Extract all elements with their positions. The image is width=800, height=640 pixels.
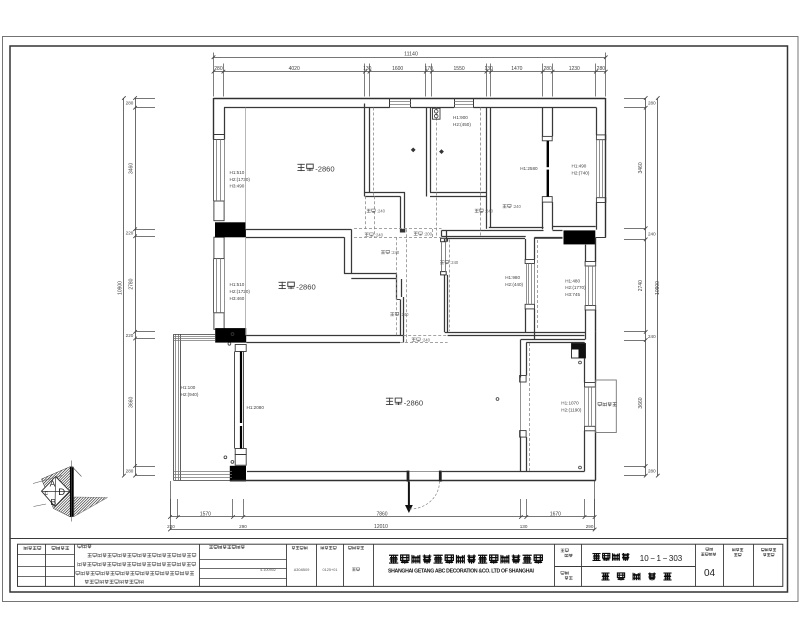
svg-text:H1:2580: H1:2580	[520, 166, 538, 171]
svg-text:H1:1070: H1:1070	[561, 401, 579, 406]
svg-text:H2:(1190): H2:(1190)	[561, 407, 582, 412]
svg-text:3460: 3460	[638, 162, 644, 173]
svg-text:220: 220	[126, 333, 134, 338]
svg-text:1570: 1570	[200, 512, 211, 518]
svg-text:170: 170	[425, 66, 434, 72]
svg-text:H2:(940): H2:(940)	[181, 392, 199, 397]
svg-text:H2:(1720): H2:(1720)	[230, 289, 251, 294]
svg-text:H1:900: H1:900	[453, 115, 468, 120]
svg-text:-2860: -2860	[296, 283, 315, 292]
svg-text:280: 280	[126, 469, 134, 474]
svg-text:04: 04	[704, 568, 716, 579]
svg-text:c: c	[44, 490, 48, 497]
svg-text::240: :240	[391, 250, 400, 255]
svg-text:280: 280	[597, 66, 606, 72]
svg-text:SHANGHAI GETANG ABC DECORATION: SHANGHAI GETANG ABC DECORATION &CO. LTD …	[388, 569, 535, 575]
svg-text:220: 220	[167, 524, 175, 529]
svg-text::240: :240	[400, 312, 409, 317]
svg-text:130: 130	[485, 66, 494, 72]
svg-text:H3:745: H3:745	[565, 292, 580, 297]
svg-text::240: :240	[513, 204, 522, 209]
svg-text:3660: 3660	[128, 396, 134, 407]
svg-text:0125+01: 0125+01	[323, 568, 338, 572]
svg-text::240: :240	[422, 337, 431, 342]
svg-text:H2:(440): H2:(440)	[505, 282, 523, 287]
svg-text:10900: 10900	[655, 281, 661, 295]
svg-text:H2:(740): H2:(740)	[572, 170, 590, 175]
svg-text:240: 240	[648, 334, 656, 339]
svg-text:H2:(1730): H2:(1730)	[230, 177, 251, 182]
svg-text:1230: 1230	[569, 66, 580, 72]
svg-text:H2:(1770): H2:(1770)	[565, 285, 586, 290]
svg-text:290: 290	[239, 524, 247, 529]
svg-text:D: D	[58, 487, 65, 498]
svg-text:12010: 12010	[374, 524, 388, 530]
svg-text:130: 130	[520, 524, 528, 529]
svg-text:2740: 2740	[638, 280, 644, 291]
svg-text:4020: 4020	[289, 66, 300, 72]
svg-text:3460: 3460	[128, 163, 134, 174]
svg-text:280: 280	[126, 101, 134, 106]
svg-text:A: A	[50, 479, 56, 489]
svg-text:H2:(450): H2:(450)	[453, 122, 471, 127]
svg-text:H1:100: H1:100	[181, 385, 196, 390]
svg-text:280: 280	[543, 66, 552, 72]
svg-text:1470: 1470	[511, 66, 522, 72]
svg-text:H1:510: H1:510	[230, 282, 245, 287]
svg-text:3660: 3660	[638, 397, 644, 408]
svg-text:A304B09: A304B09	[294, 568, 310, 572]
svg-text:130: 130	[363, 66, 372, 72]
svg-text:10 − 1 − 303: 10 − 1 − 303	[640, 554, 683, 563]
svg-text:-2860: -2860	[315, 165, 334, 174]
svg-text:290: 290	[586, 524, 594, 529]
svg-text:H1:480: H1:480	[565, 278, 580, 283]
svg-text:4.100902: 4.100902	[260, 568, 276, 572]
svg-text:H3:460: H3:460	[230, 296, 245, 301]
svg-text:11140: 11140	[404, 52, 418, 58]
svg-text:240: 240	[648, 232, 656, 237]
svg-text:B: B	[50, 497, 56, 507]
svg-text::200: :200	[424, 231, 433, 236]
svg-text:2780: 2780	[128, 278, 134, 289]
svg-text:220: 220	[126, 231, 134, 236]
svg-text:1670: 1670	[550, 512, 561, 518]
svg-text::240: :240	[377, 209, 386, 214]
svg-text:H1:2080: H1:2080	[247, 405, 265, 410]
svg-text:H3:490: H3:490	[230, 184, 245, 189]
svg-text:10900: 10900	[118, 281, 124, 295]
svg-text:1550: 1550	[454, 66, 465, 72]
svg-text:-2860: -2860	[404, 399, 423, 408]
svg-text::240: :240	[485, 209, 494, 214]
svg-text:280: 280	[648, 101, 656, 106]
svg-text:7860: 7860	[376, 512, 387, 518]
svg-text:280: 280	[648, 469, 656, 474]
svg-text:280: 280	[214, 66, 223, 72]
svg-text:H1:490: H1:490	[572, 164, 587, 169]
svg-text::240: :240	[375, 232, 384, 237]
svg-text:H1:980: H1:980	[505, 275, 520, 280]
svg-text:1600: 1600	[392, 66, 403, 72]
svg-text:H1:510: H1:510	[230, 170, 245, 175]
svg-text::240: :240	[450, 260, 459, 265]
